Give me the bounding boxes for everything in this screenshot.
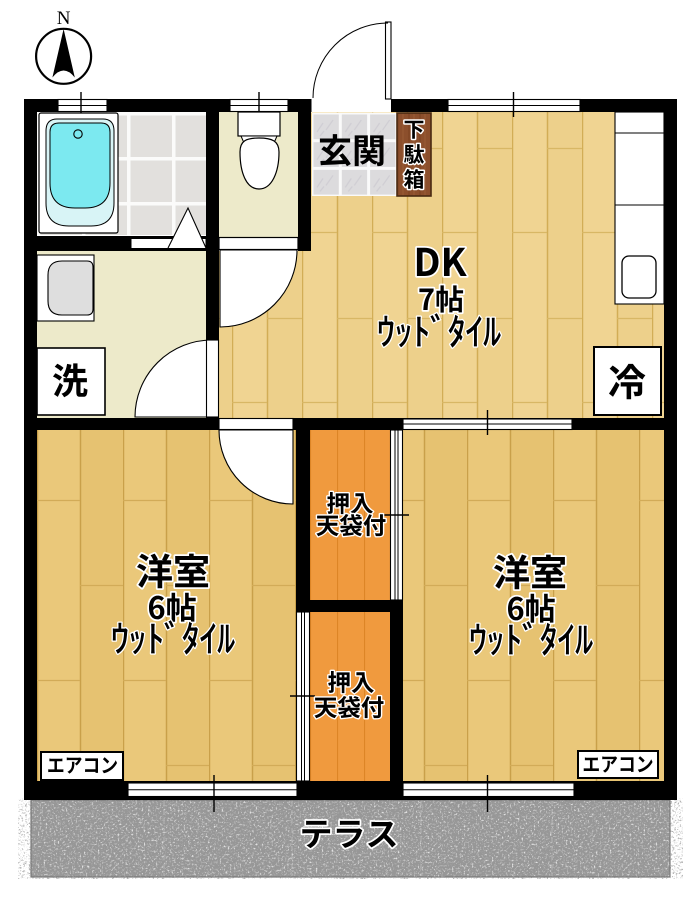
svg-text:N: N bbox=[57, 8, 71, 29]
